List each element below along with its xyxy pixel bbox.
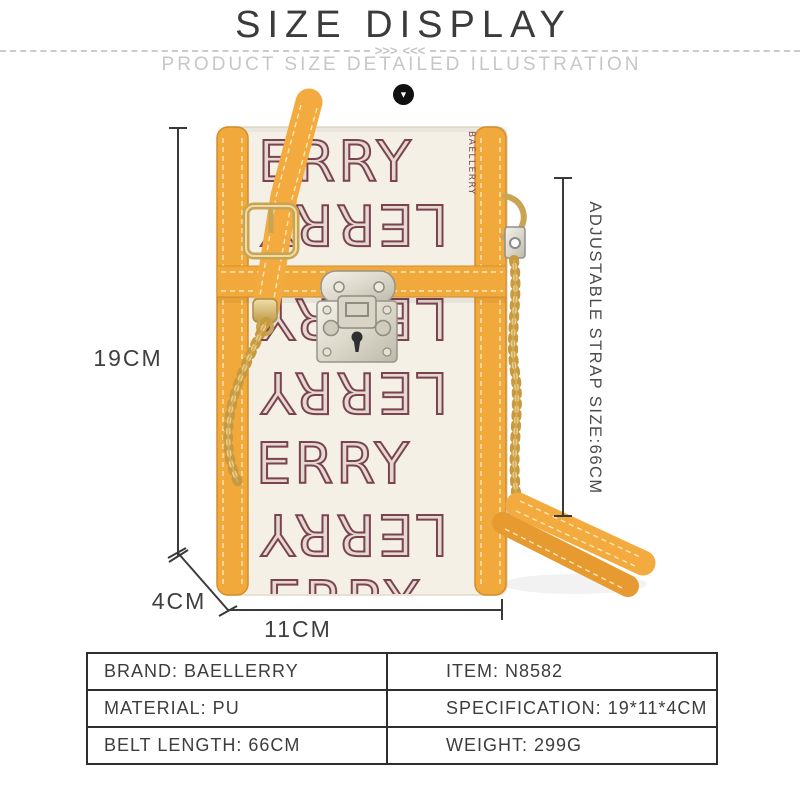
spec-cell-material: MATERIAL: PU bbox=[88, 689, 388, 726]
right-chain bbox=[513, 260, 517, 500]
width-dimension: 11CM bbox=[228, 599, 502, 642]
page-root: { "header": { "title": "SIZE DISPLAY", "… bbox=[0, 0, 800, 800]
height-label: 19CM bbox=[93, 345, 162, 371]
pattern-row: LERRY bbox=[258, 501, 448, 566]
spec-table: BRAND: BAELLERRY ITEM: N8582 MATERIAL: P… bbox=[86, 652, 718, 765]
strap-dimension: ADJUSTABLE STRAP SIZE:66CM bbox=[554, 178, 604, 516]
spec-cell-belt-length: BELT LENGTH: 66CM bbox=[88, 726, 388, 763]
spec-cell-weight: WEIGHT: 299G bbox=[388, 726, 716, 763]
depth-label: 4CM bbox=[152, 588, 207, 614]
strap-size-label: ADJUSTABLE STRAP SIZE:66CM bbox=[586, 201, 604, 494]
flap-top-shadow bbox=[218, 127, 507, 132]
lock-clasp bbox=[317, 271, 397, 362]
width-label: 11CM bbox=[264, 616, 332, 642]
pattern-row: ERRY bbox=[256, 432, 412, 497]
spec-cell-brand: BRAND: BAELLERRY bbox=[88, 654, 388, 689]
spec-cell-item: ITEM: N8582 bbox=[388, 654, 716, 689]
spec-cell-specification: SPECIFICATION: 19*11*4CM bbox=[388, 689, 716, 726]
height-dimension: 19CM bbox=[93, 128, 188, 562]
side-print: BAELLERRY bbox=[466, 131, 476, 196]
pattern-row: LERRY bbox=[258, 359, 448, 424]
bag: ERRY LERRY LERRY LERRY ERRY LERRY ERRY bbox=[217, 102, 643, 635]
